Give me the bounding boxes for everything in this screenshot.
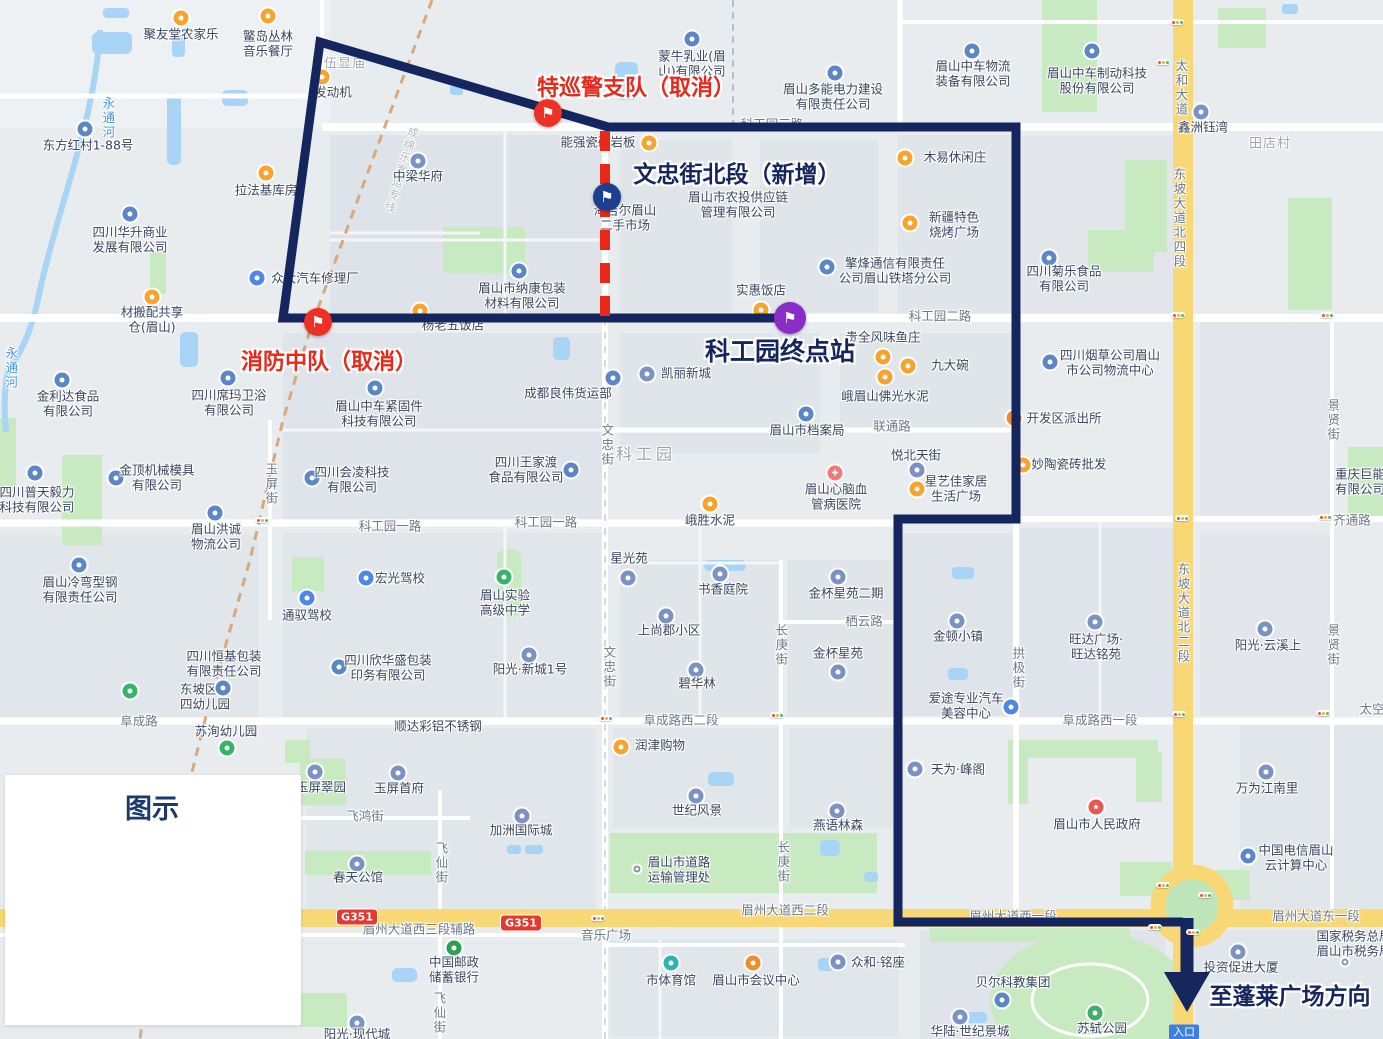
map-canvas[interactable]: 科工园三路科工园二路联通路齐通路科工园一路科工园一路阜成路阜成路西二段阜成路西一… xyxy=(0,0,1383,1039)
traffic-light-icon xyxy=(1172,711,1186,717)
traffic-light-icon xyxy=(1148,924,1162,930)
station-marker-cancelled: ⚑ xyxy=(304,308,332,336)
legend: 图示 原线路 拟调整线路 xyxy=(5,775,301,1025)
g351-route-shield: G351 xyxy=(336,909,378,926)
traffic-light-icon xyxy=(1320,312,1334,318)
traffic-light-icon xyxy=(770,712,784,718)
station-label: 文忠街北段（新增） xyxy=(634,155,841,189)
legend-title: 图示 xyxy=(125,787,179,826)
traffic-light-icon xyxy=(1156,882,1170,888)
traffic-light-icon xyxy=(1170,19,1184,25)
station-marker-cancelled: ⚑ xyxy=(534,99,562,127)
station-marker-new: ⚑ xyxy=(593,183,621,211)
traffic-light-icon xyxy=(1198,892,1212,898)
traffic-light-icon xyxy=(1318,514,1332,520)
entrance-badge: 入口 xyxy=(1169,1025,1199,1039)
station-marker-terminal: ⚑ xyxy=(774,302,806,334)
traffic-light-icon xyxy=(1171,312,1185,318)
traffic-light-icon xyxy=(1175,515,1189,521)
station-label: 消防中队（取消） xyxy=(241,344,417,376)
traffic-light-icon xyxy=(255,517,269,523)
station-label: 科工园终点站 xyxy=(705,332,855,368)
g351-route-shield: G351 xyxy=(500,915,542,932)
traffic-light-icon xyxy=(591,915,605,921)
traffic-light-icon xyxy=(1186,929,1200,935)
traffic-light-icon xyxy=(1156,59,1170,65)
traffic-light-icon xyxy=(1316,710,1330,716)
station-label: 特巡警支队（取消） xyxy=(537,70,735,102)
traffic-light-icon xyxy=(599,715,613,721)
direction-note: 至蓬莱广场方向 xyxy=(1210,977,1371,1011)
